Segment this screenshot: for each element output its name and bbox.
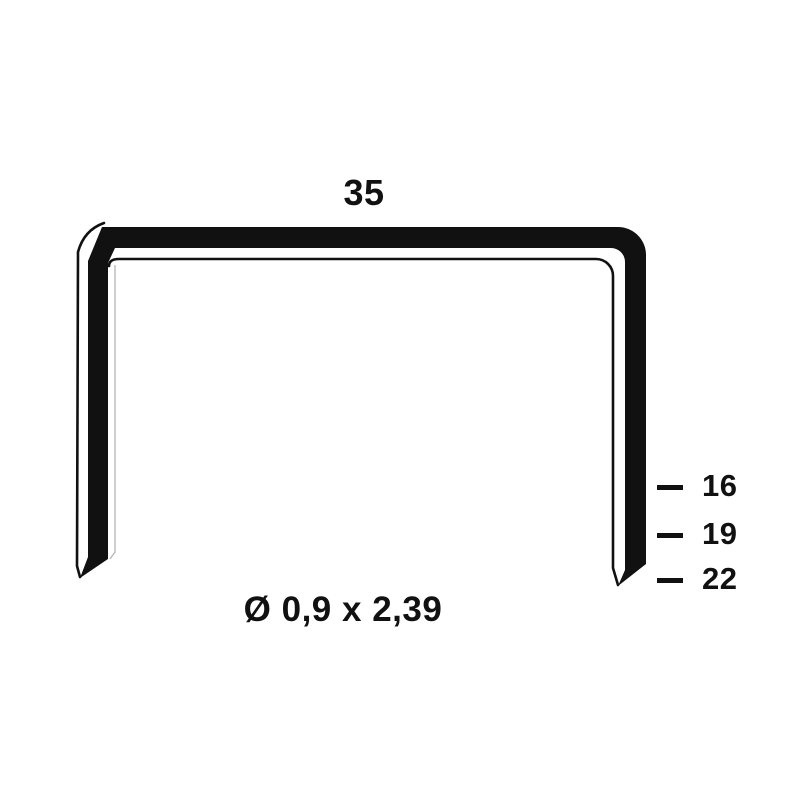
leg-length-tick-19 xyxy=(657,533,683,538)
staple-body xyxy=(80,227,646,586)
wire-spec-label: Ø 0,9 x 2,39 xyxy=(193,588,493,632)
leg-length-tick-22 xyxy=(657,578,683,583)
leg-length-label-16: 16 xyxy=(702,465,772,507)
leg-length-tick-16 xyxy=(657,485,683,490)
leg-length-label-22: 22 xyxy=(702,558,772,600)
staple-inner-outline xyxy=(109,259,618,585)
crown-width-label: 35 xyxy=(304,172,424,214)
staple-diagram: 35 16 19 22 Ø 0,9 x 2,39 xyxy=(0,0,800,800)
staple-left-inner-line xyxy=(110,265,115,559)
staple-drawing xyxy=(0,0,800,800)
leg-length-label-19: 19 xyxy=(702,513,772,555)
